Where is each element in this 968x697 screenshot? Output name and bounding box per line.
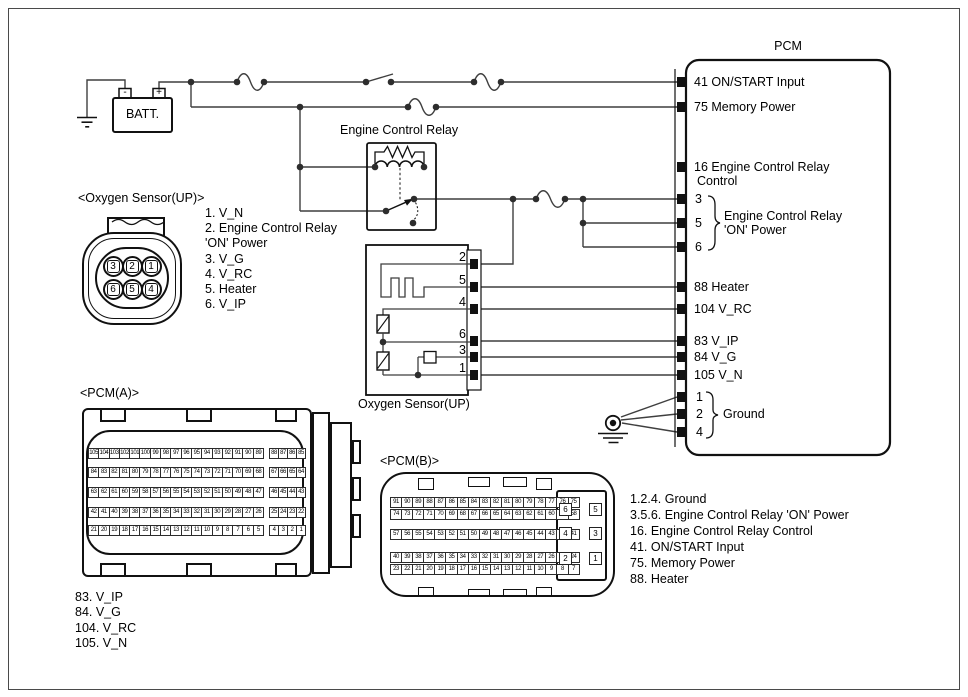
pin-cell: 22 — [296, 507, 306, 518]
calibration-resistor — [424, 352, 436, 364]
pcm-pin-88-label: 88 Heater — [694, 280, 749, 294]
pcm-b-notch — [536, 478, 552, 490]
pcm-box-symbol — [675, 60, 890, 455]
pcm-pin-2-label: 2 — [696, 407, 703, 421]
pcm-pin-16-label: 16 Engine Control Relay — [694, 160, 830, 174]
pcm-pin-6-label: 6 — [695, 240, 702, 254]
pcm-b-legend: 1.2.4. Ground3.5.6. Engine Control Relay… — [630, 491, 849, 587]
pcm-a-row-2: 8483828180797877767574737271706968676665… — [88, 467, 306, 478]
fuse-icon — [474, 74, 501, 91]
pcm-pin-104-label: 104 V_RC — [694, 302, 752, 316]
pcm-pin-83-label: 83 V_IP — [694, 334, 738, 348]
pcm-pin-1-label: 1 — [696, 390, 703, 404]
pcm-b-notch — [536, 587, 552, 597]
fuse-icons — [237, 74, 565, 208]
o2-pin-6: 6 — [446, 327, 466, 341]
pcm-a-tab — [275, 563, 297, 577]
o2-pin-2: 2 — [446, 250, 466, 264]
pcm-b-row-5: 2322212019181716151413121110987 — [390, 564, 580, 575]
fuse-icon — [408, 99, 436, 116]
pin-cell: 85 — [296, 448, 306, 459]
pcm-b-bigpin-1: 1 — [589, 552, 602, 565]
pcm-a-lever-tab — [352, 514, 361, 538]
pcm-b-notch — [468, 589, 490, 597]
pin-cell: 89 — [253, 448, 264, 459]
pcm-b-bigpin-3: 3 — [589, 527, 602, 540]
ground-symbol — [77, 118, 97, 127]
o2-pin-1: 1 — [446, 361, 466, 375]
pcm-b-notch — [503, 477, 527, 487]
pcm-b-bigpin-2: 2 — [559, 552, 572, 565]
pcm-b-row-3: 5756555453525150494847464544434241 — [390, 529, 580, 540]
relay-switch-arm — [386, 201, 408, 211]
pcm-b-notch — [418, 478, 434, 490]
pcm-pin-16-label-2: Control — [697, 174, 737, 188]
relay-resistor — [375, 147, 424, 168]
pcm-pin-3-label: 3 — [695, 192, 702, 206]
pcm-title: PCM — [686, 39, 890, 53]
brace-ground — [706, 392, 718, 438]
pcm-a-row-5: 212019181716151413121110987654321 — [88, 525, 306, 536]
pin-cell: 47 — [253, 487, 264, 498]
relay-on-power-label: Engine Control Relay — [724, 209, 842, 223]
o2-connector-strip — [467, 250, 481, 390]
pin-cell: 1 — [296, 525, 306, 536]
pcm-pin-75-label: 75 Memory Power — [694, 100, 795, 114]
o2-cavity-3: 3 — [103, 256, 124, 277]
pcm-b-notch — [468, 477, 490, 487]
pcm-b-notch — [503, 589, 527, 597]
pcm-a-lever — [330, 422, 352, 568]
pcm-b-row-4: 4039383736353433323130292827262524 — [390, 552, 580, 563]
pcm-a-tab — [100, 563, 126, 577]
pcm-a-title: <PCM(A)> — [80, 386, 139, 400]
battery-neg-terminal: - — [119, 88, 131, 98]
pcm-pin-105-label: 105 V_N — [694, 368, 743, 382]
relay-on-power-label-2: 'ON' Power — [724, 223, 786, 237]
o2-cavity-1: 1 — [141, 256, 162, 277]
pcm-a-row-1: 1051041031021011009998979695949392919089… — [88, 448, 306, 459]
pcm-a-row-4: 4241403938373635343332313029282726252423… — [88, 507, 306, 518]
pcm-b-row-2: 7473727170696867666564636261605958 — [390, 509, 580, 520]
pcm-pin-41-label: 41 ON/START Input — [694, 75, 804, 89]
relay-coil — [375, 161, 424, 167]
pcm-b-bigpin-6: 6 — [559, 503, 572, 516]
pcm-pin-5-label: 5 — [695, 216, 702, 230]
pcm-a-lever-tab — [352, 477, 361, 501]
pcm-b-bigpin-5: 5 — [589, 503, 602, 516]
pcm-b-row-1: 9190898887868584838281807978777675 — [390, 497, 580, 508]
pcm-a-legend: 83. V_IP84. V_G 104. V_RC105. V_N — [75, 590, 136, 652]
pin-cell: 68 — [253, 467, 264, 478]
pin-cell: 26 — [253, 507, 264, 518]
pcm-a-lever-tab — [352, 440, 361, 464]
pcm-a-tab — [186, 408, 212, 422]
pcm-a-tab — [186, 563, 212, 577]
pcm-a-lock-rail — [312, 412, 330, 574]
battery-label: BATT. — [113, 107, 172, 121]
pin-cell: 5 — [253, 525, 264, 536]
o2-pin-4: 4 — [446, 295, 466, 309]
o2-cavity-5: 5 — [122, 279, 143, 300]
brace-on-power — [708, 196, 720, 250]
engine-control-relay-symbol — [367, 143, 436, 230]
pcm-a-row-3: 6362616059585756555453525150494847464544… — [88, 487, 306, 498]
wiring-diagram-page: BATT. - + Engine Control Relay PCM 41 ON… — [0, 0, 968, 697]
o2-connector-title: <Oxygen Sensor(UP)> — [78, 191, 204, 205]
o2-pin-5: 5 — [446, 273, 466, 287]
o2-cavity-6: 6 — [103, 279, 124, 300]
relay-title: Engine Control Relay — [340, 123, 458, 137]
o2-cavity-2: 2 — [122, 256, 143, 277]
pcm-pin-84-label: 84 V_G — [694, 350, 736, 364]
pcm-b-notch — [418, 587, 434, 597]
pcm-b-title: <PCM(B)> — [380, 454, 439, 468]
o2-box-title: Oxygen Sensor(UP) — [358, 397, 470, 411]
pcm-pin-4-label: 4 — [696, 425, 703, 439]
battery-pos-terminal: + — [153, 88, 165, 98]
o2-cavity-4: 4 — [141, 279, 162, 300]
pcm-a-tab — [100, 408, 126, 422]
pin-cell: 43 — [296, 487, 306, 498]
fuse-icon — [536, 191, 565, 208]
fuse-icon — [237, 74, 264, 91]
pin-cell: 64 — [296, 467, 306, 478]
pin-cell: 7 — [568, 564, 580, 575]
pcm-ground-label: Ground — [723, 407, 765, 421]
pcm-a-tab — [275, 408, 297, 422]
o2-connector-legend: 1. V_N2. Engine Control Relay 'ON' Power… — [205, 206, 337, 312]
o2-pin-3: 3 — [446, 343, 466, 357]
pcm-pin-squares — [677, 77, 685, 437]
pcm-b-bigpin-4: 4 — [559, 527, 572, 540]
